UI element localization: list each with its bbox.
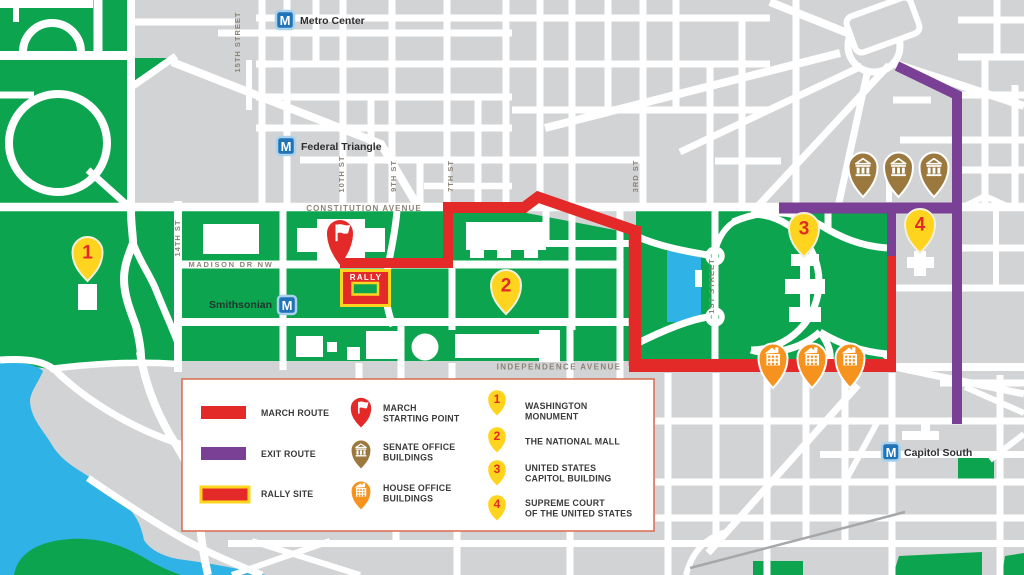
svg-text:14TH ST: 14TH ST bbox=[173, 219, 182, 256]
svg-text:10TH ST: 10TH ST bbox=[337, 155, 346, 192]
svg-text:7TH ST: 7TH ST bbox=[446, 160, 455, 192]
svg-text:2: 2 bbox=[494, 429, 501, 443]
svg-text:3: 3 bbox=[799, 219, 810, 240]
svg-text:HOUSE OFFICE: HOUSE OFFICE bbox=[383, 483, 451, 493]
svg-text:1: 1 bbox=[494, 392, 501, 406]
svg-text:2: 2 bbox=[501, 276, 512, 297]
svg-text:BUILDINGS: BUILDINGS bbox=[383, 453, 433, 463]
svg-text:OF THE UNITED STATES: OF THE UNITED STATES bbox=[525, 509, 632, 519]
svg-text:EXIT ROUTE: EXIT ROUTE bbox=[261, 449, 316, 459]
svg-text:MADISON DR NW: MADISON DR NW bbox=[188, 260, 273, 269]
svg-text:SUPREME COURT: SUPREME COURT bbox=[525, 498, 605, 508]
svg-text:MARCH: MARCH bbox=[383, 403, 417, 413]
svg-text:Capitol South: Capitol South bbox=[904, 447, 972, 459]
svg-text:Federal Triangle: Federal Triangle bbox=[301, 141, 382, 153]
svg-text:CAPITOL BUILDING: CAPITOL BUILDING bbox=[525, 474, 611, 484]
svg-text:RALLY: RALLY bbox=[350, 273, 382, 282]
svg-text:3: 3 bbox=[494, 462, 501, 476]
svg-text:Metro Center: Metro Center bbox=[300, 15, 365, 27]
svg-text:THE NATIONAL MALL: THE NATIONAL MALL bbox=[525, 437, 620, 447]
svg-text:M: M bbox=[886, 445, 897, 460]
svg-text:M: M bbox=[280, 13, 291, 28]
svg-text:4: 4 bbox=[915, 215, 926, 236]
svg-text:STARTING POINT: STARTING POINT bbox=[383, 414, 460, 424]
svg-text:INDEPENDENCE AVENUE: INDEPENDENCE AVENUE bbox=[497, 363, 622, 372]
svg-text:UNITED STATES: UNITED STATES bbox=[525, 463, 596, 473]
svg-text:CONSTITUTION AVENUE: CONSTITUTION AVENUE bbox=[306, 204, 422, 213]
svg-text:Smithsonian: Smithsonian bbox=[209, 299, 272, 311]
svg-text:MARCH ROUTE: MARCH ROUTE bbox=[261, 408, 329, 418]
svg-text:M: M bbox=[282, 298, 293, 313]
svg-text:3RD ST: 3RD ST bbox=[631, 160, 640, 193]
svg-text:15TH STREET: 15TH STREET bbox=[233, 11, 242, 72]
svg-text:M: M bbox=[281, 139, 292, 154]
svg-text:4: 4 bbox=[494, 497, 501, 511]
svg-text:RALLY SITE: RALLY SITE bbox=[261, 489, 313, 499]
svg-text:BUILDINGS: BUILDINGS bbox=[383, 494, 433, 504]
svg-text:MONUMENT: MONUMENT bbox=[525, 412, 579, 422]
svg-text:SENATE OFFICE: SENATE OFFICE bbox=[383, 442, 455, 452]
svg-text:1ST STREET: 1ST STREET bbox=[707, 258, 716, 313]
svg-text:WASHINGTON: WASHINGTON bbox=[525, 401, 587, 411]
svg-text:1: 1 bbox=[82, 243, 93, 264]
svg-text:9TH ST: 9TH ST bbox=[389, 160, 398, 192]
